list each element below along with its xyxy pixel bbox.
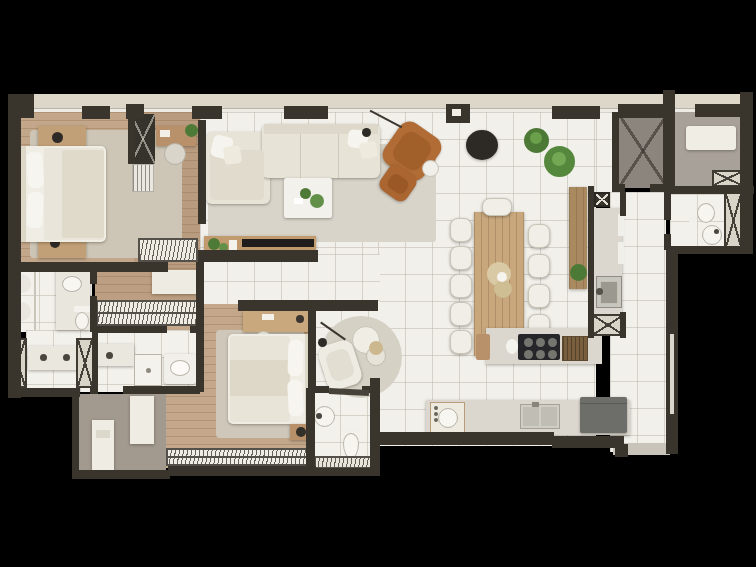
bath3-vanity	[96, 344, 134, 366]
tall-counter-shelf-2	[618, 242, 624, 264]
dining-chair-r2	[528, 254, 550, 278]
bath4-faucet	[714, 229, 719, 234]
burner-3	[548, 338, 557, 347]
laundry-counter-2	[130, 396, 154, 444]
foyer-bench	[686, 126, 736, 150]
wall-powder-south	[306, 468, 376, 476]
laundry-counter-1	[92, 420, 114, 472]
wall-baths-south-a	[90, 386, 98, 394]
masterbath-basin	[62, 276, 82, 292]
wall-baths-south	[8, 388, 80, 397]
nook-pampas-plant	[369, 341, 383, 355]
right-wall-glass	[670, 334, 674, 414]
wall-laundry-south	[72, 470, 170, 479]
wall-bedroom2-south	[168, 466, 316, 476]
salt-dish	[506, 339, 518, 354]
dining-chair-l2	[450, 246, 472, 270]
aux-sink-knob-2	[434, 412, 438, 416]
wall-baths-divider	[92, 332, 98, 388]
centerpiece-dish	[497, 272, 507, 282]
wall-living-west	[198, 120, 206, 224]
coffee-table-dish	[294, 198, 303, 204]
sofa-seam-2	[338, 134, 339, 178]
wall-pier-g	[695, 104, 741, 117]
bistro-table	[466, 130, 498, 160]
elevator-x-brace	[620, 116, 666, 186]
wall-tv-half	[198, 250, 318, 262]
island-cutting-board	[476, 334, 490, 360]
wall-bath3-east	[196, 330, 204, 392]
burner-5	[536, 350, 545, 359]
wall-left-outer	[8, 112, 21, 398]
tall-counter-shelf-1	[618, 214, 624, 236]
wall-elevator-west	[612, 112, 619, 188]
wall-laundry-west	[72, 392, 79, 478]
bath3-basin	[170, 360, 190, 376]
bed1-pillow-1	[26, 151, 44, 188]
bath3-faucet	[106, 352, 113, 359]
floor-lamp-head	[362, 128, 371, 137]
wall-right-outer	[740, 92, 753, 252]
wall-pier-c	[192, 106, 222, 119]
burner-2	[536, 338, 545, 347]
bed2-pillow-2	[287, 380, 304, 417]
wall-pier-e	[552, 106, 600, 119]
double-sink-basin-2	[541, 407, 557, 426]
wall-bath4-west-a	[664, 192, 671, 220]
bedroom2-dresser-decor	[296, 315, 304, 323]
wall-closet-south-a	[95, 326, 167, 333]
pantry-plant	[570, 264, 587, 281]
desk-decor	[160, 130, 170, 137]
vent-duct-kitchen	[594, 192, 610, 207]
wall-masterbath-east-a	[90, 268, 97, 284]
wall-foyer-south	[664, 186, 754, 194]
burner-6	[548, 350, 557, 359]
wardrobe-open-shelf	[132, 164, 154, 192]
wall-baths-south-b	[123, 386, 200, 394]
bath2-faucet-1	[40, 354, 47, 361]
closet1-hatch	[138, 238, 198, 262]
wall-foyer-west	[663, 90, 675, 188]
sofa-pillow-2	[223, 145, 242, 165]
vent-duct-foyer	[712, 170, 743, 187]
dining-chair-head	[482, 198, 512, 216]
bath3-drain	[146, 368, 151, 373]
closet2-dresser	[152, 270, 198, 294]
side-table	[422, 160, 439, 177]
wall-pier-d	[284, 106, 328, 119]
powder-faucet	[316, 413, 322, 419]
bed1-pillow-2	[26, 192, 44, 229]
bed1-blanket	[62, 150, 104, 238]
countertop-grill	[562, 336, 588, 361]
dining-chair-l3	[450, 274, 472, 298]
wall-rightblock-south	[666, 246, 753, 254]
prep-sink-faucet	[596, 288, 603, 295]
bed2-pillow-1	[287, 340, 303, 377]
wall-counter-west	[588, 186, 594, 338]
wall-powder-west	[306, 388, 315, 474]
dining-chair-r1	[528, 224, 550, 248]
masterbath-toilet-bowl	[75, 312, 89, 330]
bedroom2-dresser-tray	[262, 314, 274, 320]
centerpiece-wreath-2	[494, 280, 512, 298]
double-sink-basin-1	[523, 407, 539, 426]
wall-step-corner	[615, 444, 628, 457]
wall-powder-north-a	[315, 386, 329, 393]
burner-4	[524, 350, 533, 359]
wall-bedroom2-east	[308, 300, 316, 392]
dining-chair-l5	[450, 330, 472, 354]
bath2-faucet-2	[63, 354, 70, 361]
wall-kitchen-south-a	[378, 432, 554, 445]
potted-plant-1-hi	[530, 132, 542, 144]
desk-plant	[185, 124, 198, 137]
potted-plant-2-hi	[552, 152, 566, 166]
floor-plan-canvas	[0, 0, 756, 567]
bath4-toilet-tank	[689, 202, 697, 223]
dining-chair-l4	[450, 302, 472, 326]
closet3-rail	[166, 456, 312, 458]
bed2-blanket	[230, 360, 290, 396]
wall-pier-a	[82, 106, 110, 119]
shower-glass	[34, 270, 36, 330]
aux-sink-knob-1	[434, 406, 438, 410]
powder-toilet-tank	[341, 426, 361, 433]
dining-chair-l1	[450, 218, 472, 242]
wall-counter-east-bot	[620, 312, 626, 338]
tv	[242, 239, 314, 247]
wall-kitchen-south-b	[552, 436, 624, 448]
nook-floor-lamp-head	[318, 338, 327, 347]
closet2-rail	[96, 312, 198, 314]
aux-sink-basin	[438, 408, 458, 428]
bath4-toilet-bowl	[697, 203, 715, 223]
aux-sink-knob-3	[434, 418, 438, 422]
burner-1	[524, 338, 533, 347]
fridge-line	[580, 403, 627, 404]
wall-closet-east	[196, 262, 204, 304]
laundry-basin	[96, 430, 110, 438]
wall-counter-east-top	[620, 192, 626, 216]
desk-chair	[164, 143, 186, 165]
dining-chair-r3	[528, 284, 550, 308]
bedroom2-nightstand-lamp	[296, 427, 306, 437]
nightstand-north-lamp	[52, 132, 63, 143]
coffee-table-plant-2	[310, 194, 324, 208]
wall-elevator-south-a	[612, 184, 625, 192]
bath4-sink	[702, 225, 722, 245]
wall-bath4-west-b	[664, 234, 671, 250]
wall-bedroom1-east	[128, 112, 135, 164]
entry-pier-panel	[452, 109, 461, 116]
double-sink-faucet	[532, 402, 539, 407]
sofa-seam-1	[300, 134, 301, 178]
